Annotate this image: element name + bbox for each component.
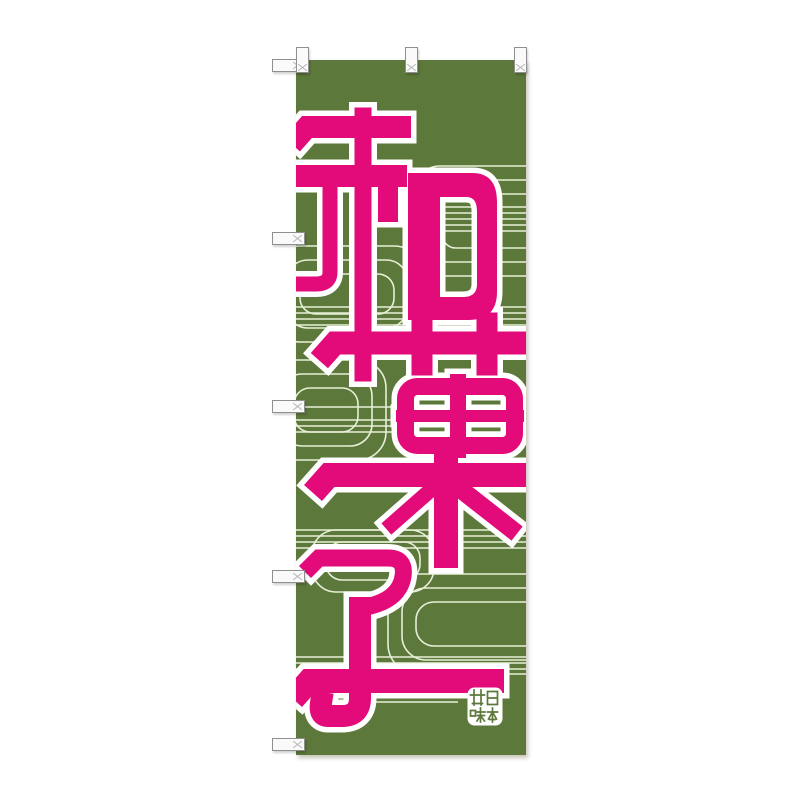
nobori-product-image: 和菓子 和菓子 [0, 0, 800, 800]
stitch-icon [407, 63, 416, 71]
top-tab [405, 47, 418, 73]
nobori-banner: 和菓子 [296, 60, 526, 755]
side-tab [272, 570, 305, 583]
stitch-icon [293, 741, 302, 749]
side-tab [272, 738, 305, 751]
seal-stamp: 日本甘味 [468, 688, 503, 726]
stitch-icon [298, 63, 307, 71]
stitch-icon [293, 403, 302, 411]
stitch-icon [293, 235, 302, 243]
side-tab [272, 232, 305, 245]
kanji-shi: 子 [301, 558, 492, 716]
stitch-icon [516, 63, 525, 71]
side-tab [272, 400, 305, 413]
top-tab [296, 47, 309, 73]
stitch-icon [293, 573, 302, 581]
top-tab [514, 47, 527, 73]
banner-artwork: 和菓子 [296, 60, 526, 755]
banner-text: 和菓子 [0, 0, 1, 1]
kanji-ink: 和 菓 [296, 116, 526, 716]
